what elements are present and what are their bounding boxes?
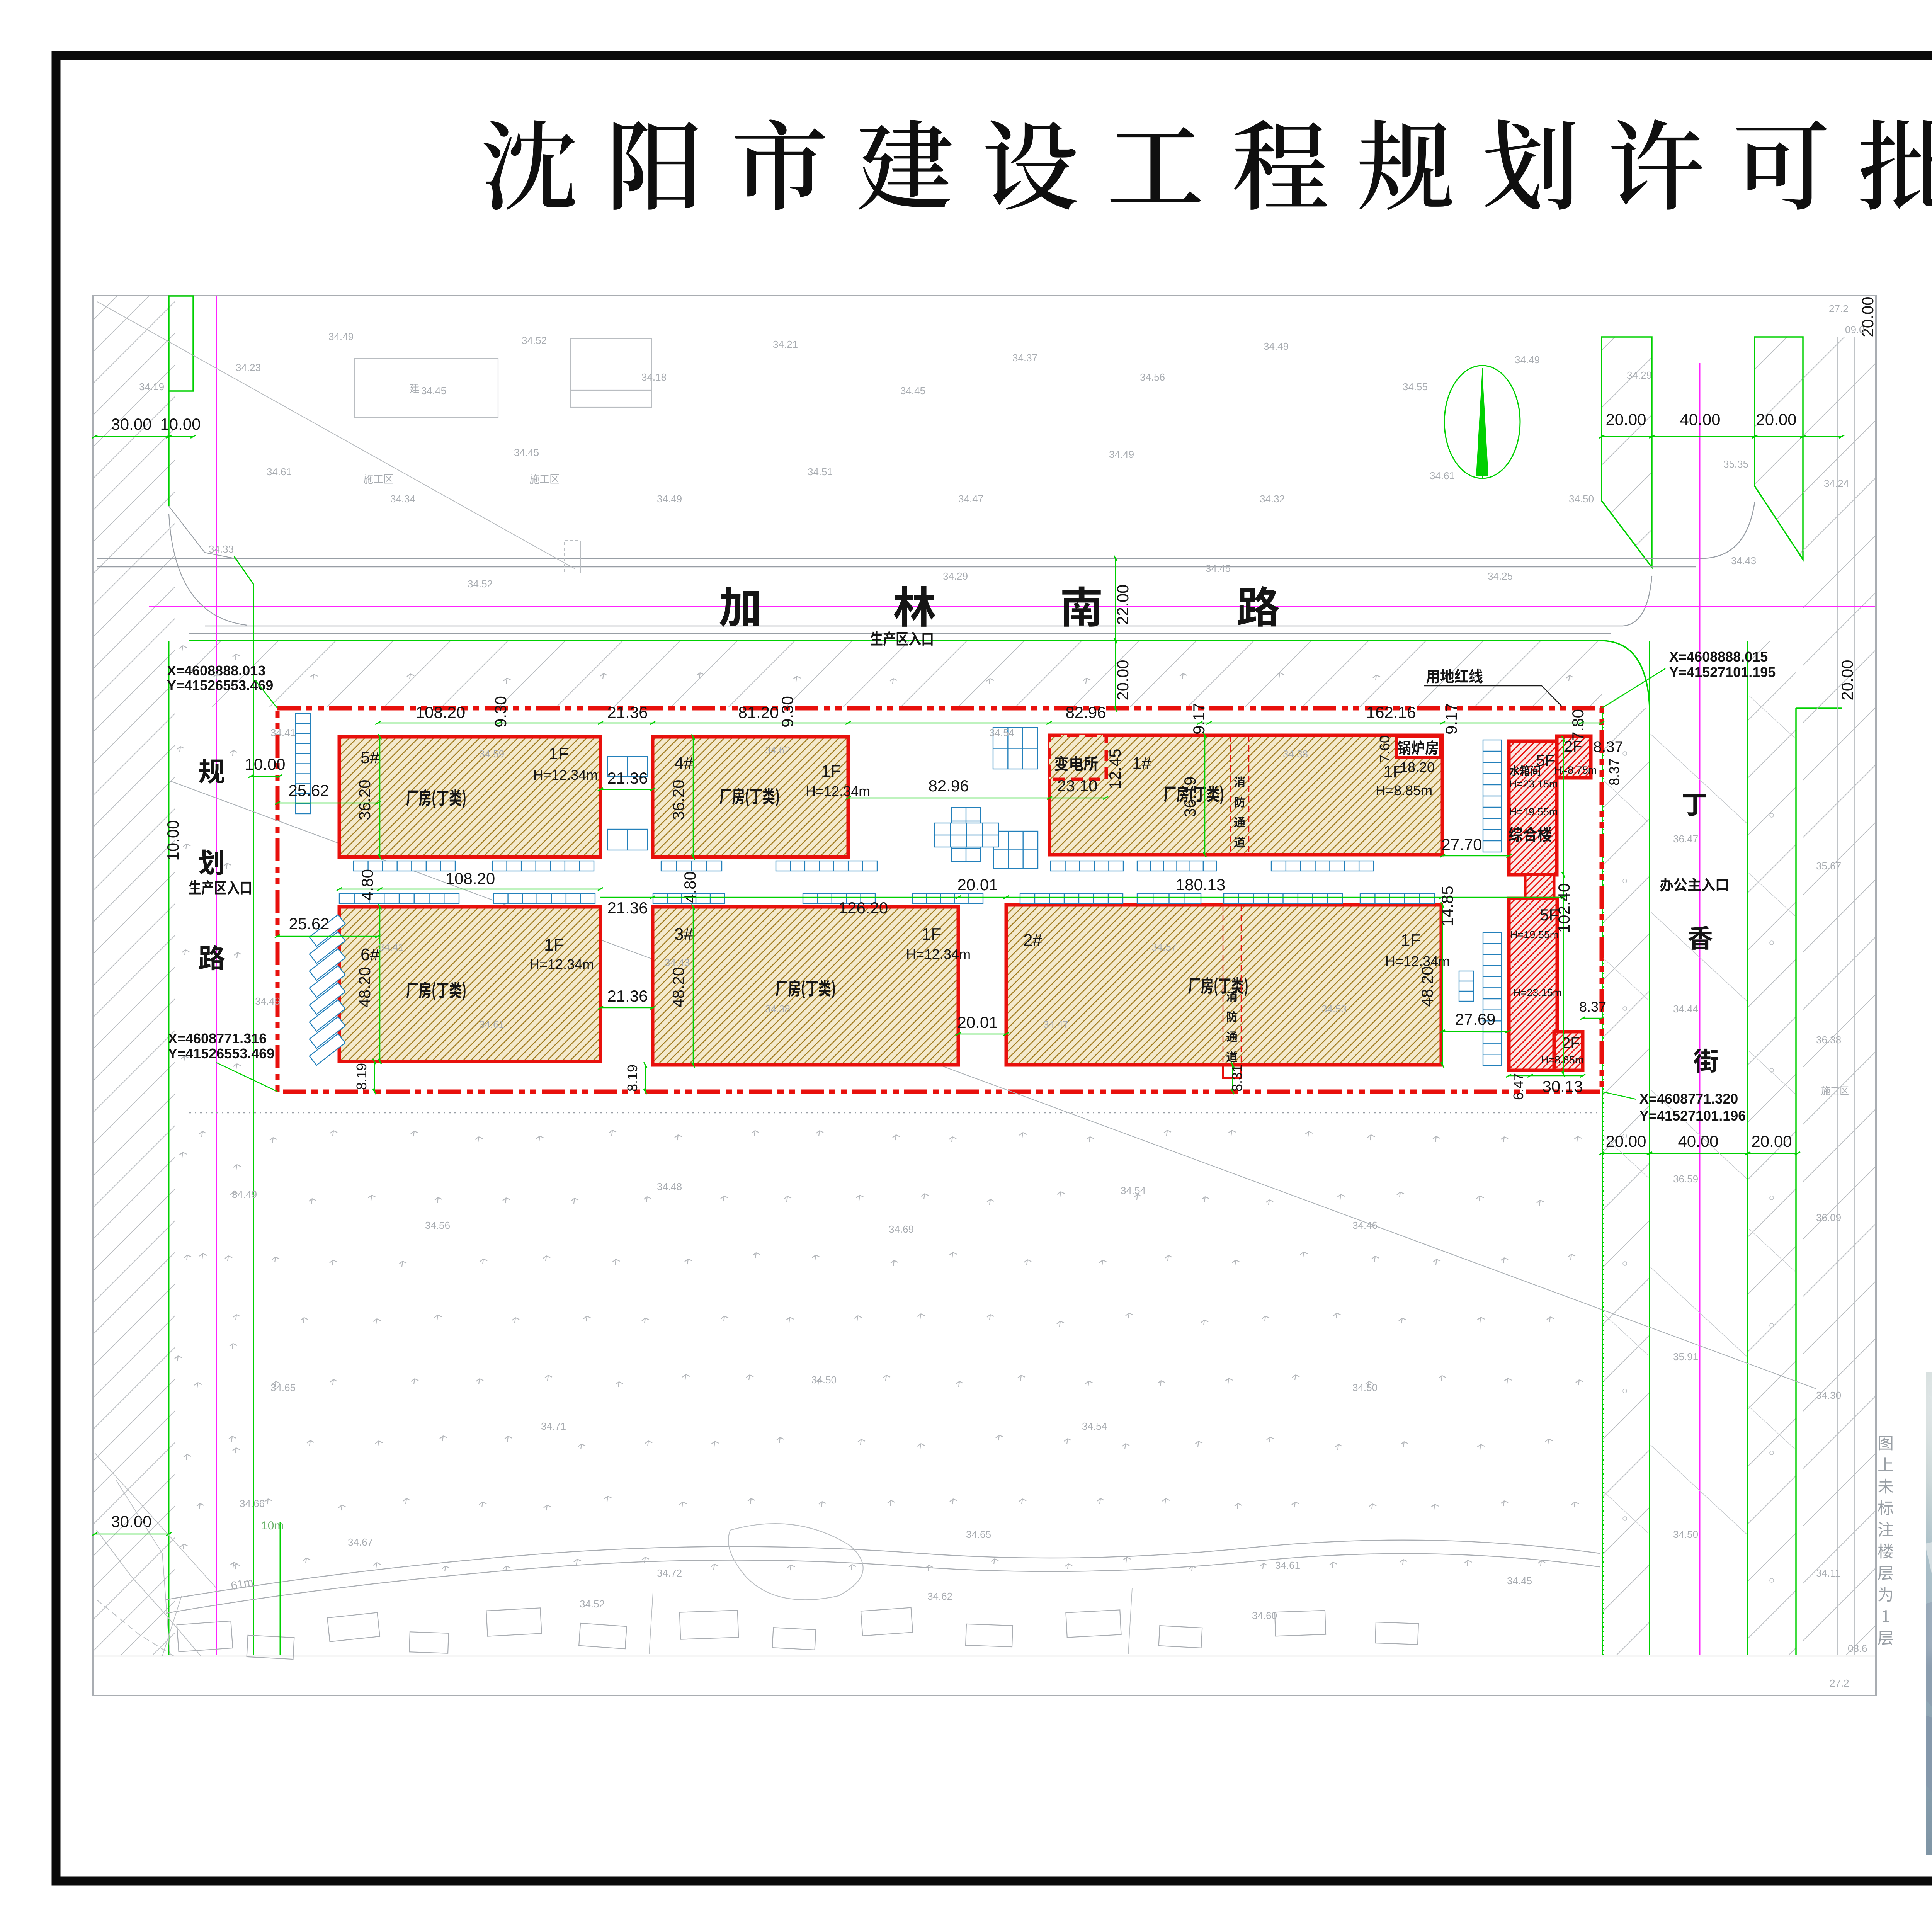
svg-text:27.2: 27.2 bbox=[1829, 303, 1849, 315]
svg-text:8.37: 8.37 bbox=[1579, 999, 1606, 1015]
svg-text:12.45: 12.45 bbox=[1106, 748, 1124, 789]
svg-text:34.55: 34.55 bbox=[1403, 381, 1428, 393]
svg-text:48.20: 48.20 bbox=[1418, 966, 1436, 1007]
svg-text:108.20: 108.20 bbox=[416, 703, 465, 721]
svg-text:X=4608771.320: X=4608771.320 bbox=[1639, 1091, 1738, 1107]
svg-text:20.00: 20.00 bbox=[1114, 660, 1132, 700]
svg-text:34.45: 34.45 bbox=[514, 447, 539, 458]
svg-text:22.00: 22.00 bbox=[1114, 584, 1132, 625]
svg-text:34.56: 34.56 bbox=[1140, 371, 1165, 383]
svg-text:34.65: 34.65 bbox=[270, 1382, 296, 1393]
svg-text:34.72: 34.72 bbox=[657, 1567, 682, 1579]
svg-text:34.32: 34.32 bbox=[1260, 493, 1285, 505]
svg-text:H=8.85m: H=8.85m bbox=[1541, 1054, 1583, 1066]
svg-text:7.80: 7.80 bbox=[1569, 709, 1587, 741]
svg-text:H=8.75m: H=8.75m bbox=[1554, 764, 1597, 776]
svg-text:34.53: 34.53 bbox=[1321, 1003, 1347, 1015]
svg-text:Y=41527101.196: Y=41527101.196 bbox=[1639, 1108, 1746, 1124]
svg-text:34.54: 34.54 bbox=[1121, 1185, 1146, 1196]
svg-text:34.45: 34.45 bbox=[421, 385, 446, 396]
svg-text:34.51: 34.51 bbox=[808, 466, 833, 478]
svg-text:X=4608888.013: X=4608888.013 bbox=[167, 663, 265, 679]
svg-text:4.80: 4.80 bbox=[681, 871, 699, 903]
svg-text:20.01: 20.01 bbox=[957, 876, 998, 894]
svg-text:102.40: 102.40 bbox=[1555, 883, 1573, 933]
svg-text:34.48: 34.48 bbox=[657, 1181, 682, 1192]
svg-text:9.30: 9.30 bbox=[492, 696, 510, 728]
svg-text:34.18: 34.18 bbox=[641, 371, 667, 383]
svg-text:36.20: 36.20 bbox=[355, 779, 374, 820]
svg-text:4.80: 4.80 bbox=[358, 869, 376, 901]
svg-text:20.00: 20.00 bbox=[1605, 1132, 1646, 1150]
svg-text:8.31: 8.31 bbox=[1229, 1065, 1245, 1092]
svg-text:08.6: 08.6 bbox=[1848, 1643, 1867, 1654]
svg-text:48.20: 48.20 bbox=[355, 967, 374, 1007]
svg-text:X=4608888.015: X=4608888.015 bbox=[1669, 649, 1768, 665]
svg-text:34.50: 34.50 bbox=[1569, 493, 1594, 505]
svg-text:61m: 61m bbox=[230, 1575, 255, 1592]
svg-text:34.47: 34.47 bbox=[958, 493, 983, 505]
svg-text:34.49: 34.49 bbox=[232, 1189, 257, 1200]
svg-text:1F: 1F bbox=[544, 935, 564, 954]
svg-text:10.00: 10.00 bbox=[164, 820, 182, 861]
svg-text:1F: 1F bbox=[922, 925, 941, 944]
svg-text:7.60: 7.60 bbox=[1377, 735, 1393, 762]
svg-text:108.20: 108.20 bbox=[446, 869, 495, 888]
svg-text:Y=41527101.195: Y=41527101.195 bbox=[1669, 664, 1776, 680]
svg-text:25.62: 25.62 bbox=[288, 781, 329, 799]
svg-text:2F: 2F bbox=[1562, 1034, 1580, 1051]
svg-text:H=8.85m: H=8.85m bbox=[1376, 782, 1432, 798]
svg-text:34.33: 34.33 bbox=[209, 543, 234, 555]
svg-text:34.50: 34.50 bbox=[811, 1374, 837, 1386]
svg-text:34.60: 34.60 bbox=[1252, 1610, 1277, 1621]
svg-text:30.00: 30.00 bbox=[111, 1512, 151, 1531]
svg-text:9.17: 9.17 bbox=[1442, 703, 1460, 735]
svg-text:6.47: 6.47 bbox=[1510, 1073, 1526, 1100]
svg-text:34.43: 34.43 bbox=[1731, 555, 1756, 566]
svg-text:34.21: 34.21 bbox=[773, 338, 798, 350]
svg-text:36.19: 36.19 bbox=[1181, 776, 1199, 817]
svg-text:30.13: 30.13 bbox=[1542, 1077, 1583, 1095]
svg-text:36.09: 36.09 bbox=[1816, 1212, 1841, 1223]
svg-text:H=19.55m: H=19.55m bbox=[1510, 929, 1558, 940]
svg-text:48.20: 48.20 bbox=[669, 967, 687, 1007]
svg-text:23.10: 23.10 bbox=[1057, 777, 1097, 795]
svg-text:27.2: 27.2 bbox=[1830, 1677, 1849, 1689]
svg-text:34.34: 34.34 bbox=[390, 493, 415, 505]
svg-text:34.65: 34.65 bbox=[966, 1529, 991, 1540]
svg-text:5#: 5# bbox=[361, 748, 379, 767]
svg-text:36.38: 36.38 bbox=[1816, 1034, 1841, 1046]
svg-text:21.36: 21.36 bbox=[607, 987, 648, 1005]
svg-text:H=23.15m: H=23.15m bbox=[1509, 778, 1558, 790]
svg-text:9.17: 9.17 bbox=[1190, 703, 1208, 735]
svg-text:34.54: 34.54 bbox=[1082, 1420, 1107, 1432]
svg-text:34.49: 34.49 bbox=[1515, 354, 1540, 366]
svg-text:6#: 6# bbox=[361, 945, 379, 964]
svg-text:20.00: 20.00 bbox=[1605, 410, 1646, 429]
svg-text:34.66: 34.66 bbox=[240, 1498, 265, 1509]
svg-text:34.61: 34.61 bbox=[1275, 1560, 1300, 1571]
svg-text:1F: 1F bbox=[821, 762, 841, 781]
svg-text:34.62: 34.62 bbox=[927, 1590, 952, 1602]
svg-text:10.00: 10.00 bbox=[160, 415, 201, 433]
svg-text:20.01: 20.01 bbox=[957, 1013, 998, 1031]
svg-text:34.19: 34.19 bbox=[139, 381, 164, 393]
svg-text:34.25: 34.25 bbox=[1488, 570, 1513, 582]
svg-text:40.00: 40.00 bbox=[1678, 1132, 1718, 1150]
svg-text:1F: 1F bbox=[549, 744, 568, 763]
svg-text:8.37: 8.37 bbox=[1593, 738, 1623, 755]
svg-text:30.00: 30.00 bbox=[111, 415, 151, 433]
svg-text:34.49: 34.49 bbox=[255, 995, 280, 1007]
svg-text:20.00: 20.00 bbox=[1756, 410, 1796, 429]
svg-text:2#: 2# bbox=[1023, 931, 1042, 950]
svg-text:35.35: 35.35 bbox=[1723, 458, 1748, 470]
svg-text:36.47: 36.47 bbox=[1673, 833, 1698, 845]
svg-text:10.00: 10.00 bbox=[245, 755, 285, 773]
svg-text:34.71: 34.71 bbox=[541, 1420, 566, 1432]
svg-text:36.59: 36.59 bbox=[1673, 1173, 1698, 1185]
svg-text:34.41: 34.41 bbox=[270, 727, 296, 738]
svg-text:180.13: 180.13 bbox=[1176, 876, 1225, 894]
svg-text:34.45: 34.45 bbox=[1206, 563, 1231, 574]
svg-text:34.67: 34.67 bbox=[348, 1536, 373, 1548]
svg-text:34.49: 34.49 bbox=[328, 331, 354, 342]
svg-text:34.41: 34.41 bbox=[379, 941, 404, 953]
svg-text:H=12.34m: H=12.34m bbox=[1385, 953, 1450, 969]
svg-text:H=12.34m: H=12.34m bbox=[533, 767, 598, 783]
svg-text:34.57: 34.57 bbox=[1151, 941, 1177, 953]
svg-text:34.56: 34.56 bbox=[425, 1219, 450, 1231]
svg-text:34.54: 34.54 bbox=[989, 727, 1014, 738]
svg-text:34.37: 34.37 bbox=[1012, 352, 1037, 364]
svg-text:126.20: 126.20 bbox=[838, 899, 888, 917]
svg-text:3#: 3# bbox=[674, 925, 693, 944]
svg-text:81.20: 81.20 bbox=[738, 703, 779, 721]
svg-text:8.37: 8.37 bbox=[1606, 759, 1622, 786]
svg-text:34.29: 34.29 bbox=[1627, 369, 1652, 381]
svg-text:34.47: 34.47 bbox=[1043, 1019, 1068, 1030]
svg-text:34.52: 34.52 bbox=[522, 335, 547, 346]
svg-text:40.00: 40.00 bbox=[1680, 410, 1720, 429]
svg-text:34.50: 34.50 bbox=[1352, 1382, 1378, 1393]
svg-text:25.62: 25.62 bbox=[289, 915, 329, 933]
svg-text:34.52: 34.52 bbox=[468, 578, 493, 590]
svg-text:34.59: 34.59 bbox=[479, 748, 504, 760]
svg-text:Y=41526553.469: Y=41526553.469 bbox=[167, 677, 273, 693]
svg-text:14.85: 14.85 bbox=[1438, 886, 1456, 926]
svg-text:82.96: 82.96 bbox=[928, 777, 969, 795]
svg-text:35.91: 35.91 bbox=[1673, 1351, 1698, 1362]
svg-text:4#: 4# bbox=[674, 754, 693, 773]
svg-text:34.52: 34.52 bbox=[580, 1598, 605, 1610]
svg-text:21.36: 21.36 bbox=[607, 703, 648, 721]
svg-text:34.50: 34.50 bbox=[1673, 1529, 1698, 1540]
svg-text:27.69: 27.69 bbox=[1455, 1010, 1495, 1028]
svg-text:34.46: 34.46 bbox=[1352, 1219, 1378, 1231]
svg-text:21.36: 21.36 bbox=[607, 899, 648, 917]
svg-text:34.49: 34.49 bbox=[657, 493, 682, 505]
svg-text:34.61: 34.61 bbox=[479, 1019, 504, 1030]
svg-text:10m: 10m bbox=[261, 1519, 284, 1532]
svg-text:20.00: 20.00 bbox=[1751, 1132, 1792, 1150]
svg-text:162.16: 162.16 bbox=[1366, 703, 1416, 721]
svg-text:34.61: 34.61 bbox=[267, 466, 292, 478]
svg-text:35.67: 35.67 bbox=[1816, 860, 1841, 872]
svg-text:34.24: 34.24 bbox=[1824, 478, 1849, 489]
svg-text:9.30: 9.30 bbox=[778, 696, 796, 728]
svg-text:34.49: 34.49 bbox=[1109, 449, 1134, 460]
svg-text:34.45: 34.45 bbox=[900, 385, 925, 396]
svg-text:34.62: 34.62 bbox=[765, 744, 790, 756]
svg-text:34.38: 34.38 bbox=[765, 1003, 790, 1015]
svg-text:H=12.34m: H=12.34m bbox=[529, 956, 594, 972]
svg-text:34.49: 34.49 bbox=[1264, 340, 1289, 352]
svg-text:09.0: 09.0 bbox=[1845, 324, 1865, 335]
svg-text:20.00: 20.00 bbox=[1838, 660, 1856, 700]
svg-text:34.61: 34.61 bbox=[1430, 470, 1455, 481]
svg-text:82.96: 82.96 bbox=[1065, 703, 1106, 721]
svg-text:1F: 1F bbox=[1401, 931, 1420, 950]
svg-text:34.45: 34.45 bbox=[1507, 1575, 1532, 1587]
svg-text:X=4608771.316: X=4608771.316 bbox=[168, 1031, 267, 1046]
svg-text:34.69: 34.69 bbox=[889, 1223, 914, 1235]
svg-text:H=19.55m: H=19.55m bbox=[1509, 806, 1558, 818]
svg-text:H=23.15m: H=23.15m bbox=[1513, 987, 1561, 998]
svg-text:8.19: 8.19 bbox=[624, 1065, 640, 1092]
svg-text:36.20: 36.20 bbox=[669, 779, 687, 820]
svg-text:8.19: 8.19 bbox=[354, 1063, 369, 1090]
svg-text:27.70: 27.70 bbox=[1441, 835, 1482, 854]
svg-text:34.44: 34.44 bbox=[1673, 1003, 1698, 1015]
svg-text:34.30: 34.30 bbox=[1816, 1389, 1841, 1401]
svg-text:H=12.34m: H=12.34m bbox=[906, 946, 971, 962]
svg-text:21.36: 21.36 bbox=[607, 769, 648, 787]
svg-text:1#: 1# bbox=[1132, 754, 1151, 773]
svg-text:34.29: 34.29 bbox=[943, 570, 968, 582]
svg-text:34.23: 34.23 bbox=[236, 362, 261, 373]
svg-text:18.20: 18.20 bbox=[1400, 759, 1435, 775]
svg-text:H=12.34m: H=12.34m bbox=[806, 783, 870, 799]
svg-text:34.11: 34.11 bbox=[1816, 1567, 1840, 1579]
svg-text:34.38: 34.38 bbox=[1283, 748, 1308, 760]
svg-text:34.43: 34.43 bbox=[665, 957, 690, 968]
